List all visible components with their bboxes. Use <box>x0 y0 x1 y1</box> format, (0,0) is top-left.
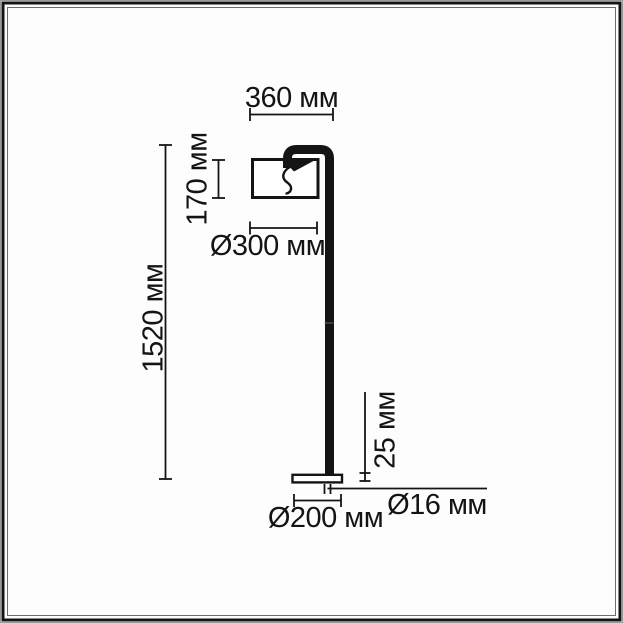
dim-shade-height: 170 мм <box>182 132 226 225</box>
dim-total-height: 1520 мм <box>138 145 173 479</box>
dim-arm-reach: 360 мм <box>245 82 338 121</box>
dim-shade-height-label: 170 мм <box>182 132 214 225</box>
dim-shade-diameter-label: Ø300 мм <box>210 230 325 262</box>
drawing-canvas: 360 мм 170 мм Ø300 мм 1520 мм 25 мм Ø16 <box>0 0 623 623</box>
floor-lamp-dimension-diagram: 360 мм 170 мм Ø300 мм 1520 мм 25 мм Ø16 <box>0 0 623 623</box>
dim-pole-diameter-label: Ø16 мм <box>387 489 487 521</box>
dim-base-diameter-label: Ø200 мм <box>268 502 383 534</box>
dim-base-diameter: Ø200 мм <box>268 494 383 534</box>
dim-shade-diameter: Ø300 мм <box>210 222 325 263</box>
dim-base-thickness-label: 25 мм <box>370 391 402 469</box>
lamp-base <box>293 475 343 483</box>
dim-base-thickness: 25 мм <box>360 391 402 481</box>
lamp-drawing <box>253 150 343 483</box>
dim-arm-reach-label: 360 мм <box>245 82 338 114</box>
